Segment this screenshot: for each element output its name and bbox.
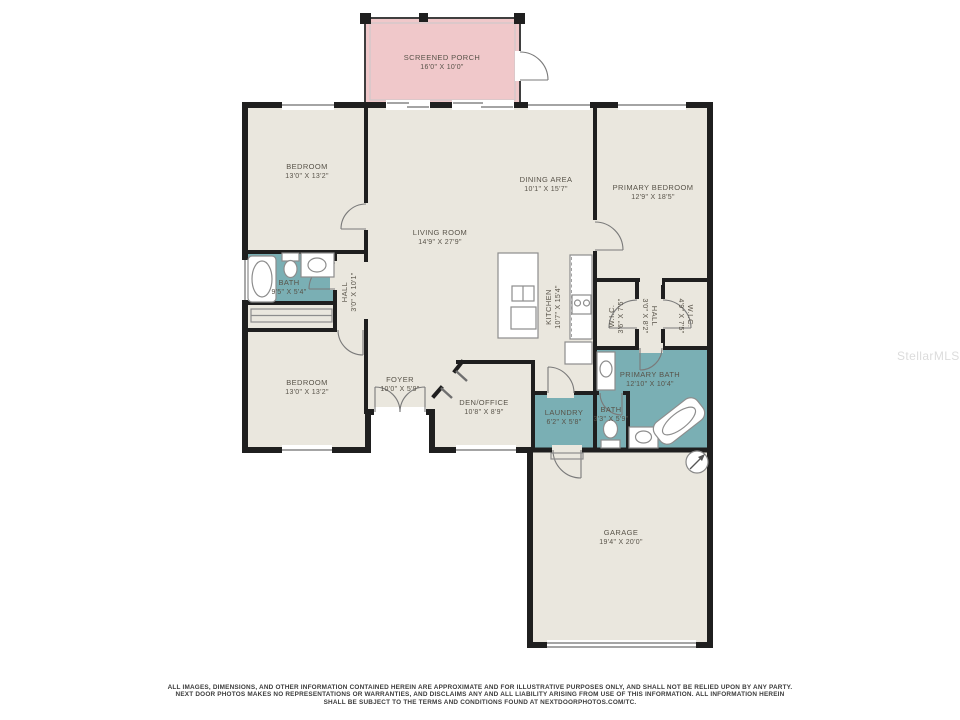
room-label-bedroom-bottom: BEDROOM 13'0" X 13'2": [285, 378, 328, 396]
toilet-icon: [282, 253, 299, 261]
disclaimer-text: ALL IMAGES, DIMENSIONS, AND OTHER INFORM…: [20, 684, 940, 706]
refrigerator-icon: [565, 342, 592, 364]
room-name: FOYER: [380, 375, 419, 384]
room-name: W.I.C.: [686, 298, 695, 333]
room-label-bath: BATH 9'5" X 5'4": [271, 278, 306, 296]
disclaimer-line-3: SHALL BE SUBJECT TO THE TERMS AND CONDIT…: [20, 699, 940, 706]
room-dims: 14'9" X 27'9": [413, 239, 467, 246]
room-dims: 12'10" X 10'4": [620, 381, 680, 388]
room-label-screened-porch: SCREENED PORCH 16'0" X 10'0": [404, 53, 480, 71]
room-name: BEDROOM: [285, 162, 328, 171]
floor-plan: [0, 0, 960, 720]
room-dims: 13'0" X 13'2": [285, 389, 328, 396]
room-dims: 19'4" X 20'0": [599, 539, 642, 546]
room-dims: 10'0" X 5'9": [380, 386, 419, 393]
room-name: PRIMARY BEDROOM: [613, 183, 694, 192]
room-name: W.I.C.: [607, 298, 616, 333]
garage-floor-area: [530, 450, 710, 645]
compass-icon: [686, 451, 708, 473]
room-label-garage: GARAGE 19'4" X 20'0": [599, 528, 642, 546]
room-dims: 16'0" X 10'0": [404, 64, 480, 71]
room-name: GARAGE: [599, 528, 642, 537]
room-dims: 9'5" X 5'4": [271, 289, 306, 296]
room-name: KITCHEN: [544, 285, 553, 328]
room-label-laundry: LAUNDRY 6'2" X 5'8": [545, 408, 584, 426]
room-name: LIVING ROOM: [413, 228, 467, 237]
room-name: DEN/OFFICE: [459, 398, 508, 407]
disclaimer-line-1: ALL IMAGES, DIMENSIONS, AND OTHER INFORM…: [20, 684, 940, 691]
room-dims: 3'0" X 8'2": [641, 298, 648, 333]
room-dims: 13'0" X 13'2": [285, 173, 328, 180]
room-name: BATH: [271, 278, 306, 287]
room-label-primary-bath: PRIMARY BATH 12'10" X 10'4": [620, 370, 680, 388]
room-label-wic-left: W.I.C. 3'6" X 7'5": [607, 298, 625, 333]
room-dims: 10'7" X 15'4": [555, 285, 562, 328]
room-label-wic-right: W.I.C. 4'9" X 7'5": [677, 298, 695, 333]
room-name: SCREENED PORCH: [404, 53, 480, 62]
room-label-bath-small: BATH 3'3" X 5'9": [593, 405, 628, 423]
room-dims: 10'1" X 15'7": [520, 186, 573, 193]
room-label-primary-bedroom: PRIMARY BEDROOM 12'9" X 18'5": [613, 183, 694, 201]
room-dims: 6'2" X 5'8": [545, 419, 584, 426]
entry-recess: [368, 412, 432, 450]
room-name: BATH: [593, 405, 628, 414]
room-label-living-room: LIVING ROOM 14'9" X 27'9": [413, 228, 467, 246]
room-dims: 12'9" X 18'5": [613, 194, 694, 201]
room-name: BEDROOM: [285, 378, 328, 387]
vanity-sink-icon: [301, 253, 334, 277]
small-bath-toilet-icon: [601, 440, 620, 448]
room-name: DINING AREA: [520, 175, 573, 184]
room-name: HALL: [650, 298, 659, 333]
room-name: PRIMARY BATH: [620, 370, 680, 379]
room-label-foyer: FOYER 10'0" X 5'9": [380, 375, 419, 393]
stellar-mls-watermark: StellarMLS: [897, 349, 960, 363]
disclaimer-line-2: NEXT DOOR PHOTOS MAKES NO REPRESENTATION…: [20, 691, 940, 698]
room-label-hall-east: HALL 3'0" X 8'2": [641, 298, 659, 333]
garage-door: [547, 640, 696, 650]
room-label-dining-area: DINING AREA 10'1" X 15'7": [520, 175, 573, 193]
room-dims: 3'3" X 5'9": [593, 416, 628, 423]
room-label-kitchen: KITCHEN 10'7" X 15'4": [544, 285, 562, 328]
room-dims: 4'9" X 7'5": [677, 298, 684, 333]
room-label-hall-west: HALL 3'0" X 10'1": [340, 272, 358, 311]
room-dims: 10'8" X 8'9": [459, 409, 508, 416]
room-dims: 3'6" X 7'5": [618, 298, 625, 333]
kitchen-island-icon: [498, 253, 538, 338]
room-name: HALL: [340, 272, 349, 311]
room-name: LAUNDRY: [545, 408, 584, 417]
kitchen-counter-icon: [570, 255, 592, 339]
room-label-bedroom-top: BEDROOM 13'0" X 13'2": [285, 162, 328, 180]
room-label-den-office: DEN/OFFICE 10'8" X 8'9": [459, 398, 508, 416]
room-dims: 3'0" X 10'1": [351, 272, 358, 311]
